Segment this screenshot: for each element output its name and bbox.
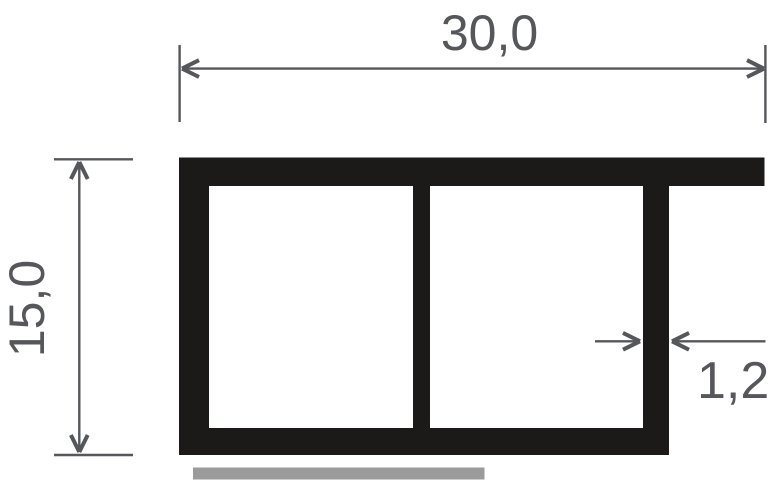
svg-text:1,2: 1,2: [697, 352, 769, 410]
svg-text:15,0: 15,0: [0, 260, 55, 357]
svg-text:30,0: 30,0: [441, 5, 538, 61]
